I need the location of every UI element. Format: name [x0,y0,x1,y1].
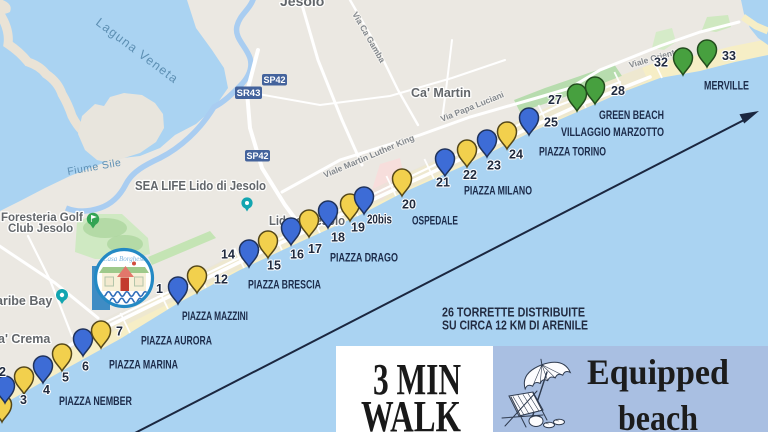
svg-text:SU CIRCA 12 KM DI ARENILE: SU CIRCA 12 KM DI ARENILE [442,318,588,333]
svg-text:20: 20 [402,198,416,212]
svg-text:22: 22 [463,168,477,182]
svg-text:PIAZZA NEMBER: PIAZZA NEMBER [59,394,132,408]
svg-text:WALK: WALK [361,392,461,432]
svg-text:5: 5 [62,371,69,385]
svg-text:GREEN BEACH: GREEN BEACH [599,108,664,122]
svg-text:PIAZZA MARINA: PIAZZA MARINA [109,358,178,372]
svg-text:16: 16 [290,248,304,262]
svg-text:MERVILLE: MERVILLE [704,79,749,93]
svg-text:19: 19 [351,221,365,235]
svg-text:21: 21 [436,176,450,190]
svg-text:20bis: 20bis [367,213,392,227]
svg-text:Club Jesolo: Club Jesolo [8,223,73,235]
svg-text:1: 1 [156,282,163,296]
svg-text:32: 32 [654,56,668,70]
svg-text:OSPEDALE: OSPEDALE [412,214,458,228]
svg-text:SP42: SP42 [246,151,268,161]
svg-text:7: 7 [116,325,123,339]
svg-text:PIAZZA DRAGO: PIAZZA DRAGO [330,251,398,265]
svg-text:PIAZZA TORINO: PIAZZA TORINO [539,145,606,159]
svg-text:12: 12 [214,273,228,287]
svg-text:PIAZZA BRESCIA: PIAZZA BRESCIA [248,278,321,292]
svg-text:SEA LIFE Lido di Jesolo: SEA LIFE Lido di Jesolo [135,179,266,193]
svg-text:Equipped: Equipped [587,352,729,392]
svg-text:Ca' Martin: Ca' Martin [411,86,471,100]
svg-text:23: 23 [487,159,501,173]
svg-text:a' Crema: a' Crema [0,332,51,346]
svg-text:PIAZZA MILANO: PIAZZA MILANO [464,184,532,198]
svg-text:SR43: SR43 [237,88,261,99]
svg-text:VILLAGGIO MARZOTTO: VILLAGGIO MARZOTTO [561,125,664,139]
svg-text:24: 24 [509,148,523,162]
svg-text:Casa Borghese: Casa Borghese [103,255,145,263]
svg-text:27: 27 [548,93,562,107]
svg-text:4: 4 [43,383,50,397]
svg-text:3: 3 [20,393,27,407]
svg-text:2: 2 [0,365,6,379]
svg-text:25: 25 [544,116,558,130]
svg-text:33: 33 [722,49,736,63]
svg-text:aribe Bay: aribe Bay [0,294,52,308]
svg-text:14: 14 [221,248,235,262]
svg-text:18: 18 [331,231,345,245]
svg-text:6: 6 [82,360,89,374]
svg-text:beach: beach [618,398,698,432]
svg-text:15: 15 [267,259,281,273]
svg-text:PIAZZA AURORA: PIAZZA AURORA [141,334,212,348]
svg-text:SP42: SP42 [263,75,285,85]
svg-text:28: 28 [611,84,625,98]
svg-text:Jesolo: Jesolo [280,0,324,9]
svg-text:PIAZZA MAZZINI: PIAZZA MAZZINI [182,309,248,323]
svg-text:17: 17 [308,242,322,256]
